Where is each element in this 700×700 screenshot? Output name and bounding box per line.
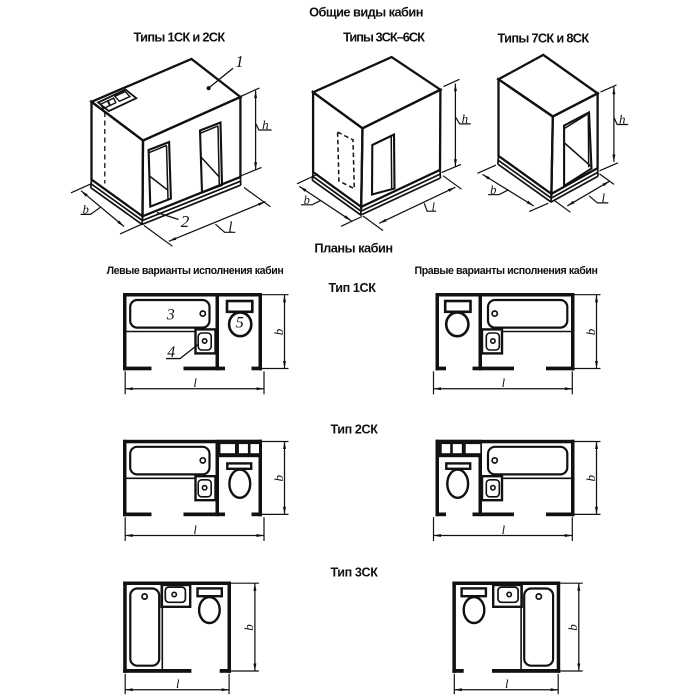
svg-text:4: 4 [167, 344, 175, 361]
svg-text:h: h [462, 111, 469, 126]
svg-text:Общие виды кабин: Общие виды кабин [309, 5, 423, 20]
svg-text:Планы кабин: Планы кабин [314, 241, 392, 256]
svg-text:b: b [271, 475, 286, 482]
svg-text:5: 5 [236, 315, 244, 332]
svg-text:l: l [502, 523, 506, 537]
svg-text:Типы 1СК и 2СК: Типы 1СК и 2СК [134, 30, 226, 45]
svg-text:h: h [262, 117, 269, 132]
svg-text:l: l [505, 677, 509, 691]
svg-text:b: b [583, 328, 598, 335]
svg-text:b: b [304, 193, 310, 207]
svg-text:b: b [83, 202, 89, 216]
svg-text:Тип 3СК: Тип 3СК [330, 566, 378, 580]
svg-text:Тип 2СК: Тип 2СК [330, 423, 378, 437]
svg-text:b: b [490, 183, 496, 197]
svg-text:Левые варианты исполнения каби: Левые варианты исполнения кабин [107, 265, 284, 277]
svg-text:b: b [565, 624, 580, 631]
svg-text:Типы 3СК–6СК: Типы 3СК–6СК [343, 30, 425, 45]
svg-text:l: l [193, 523, 197, 537]
svg-text:h: h [619, 112, 626, 127]
svg-text:Типы 7СК и 8СК: Типы 7СК и 8СК [498, 31, 590, 46]
svg-text:b: b [271, 328, 286, 335]
svg-text:1: 1 [235, 52, 244, 71]
svg-text:3: 3 [166, 307, 175, 324]
svg-text:l: l [228, 219, 232, 235]
svg-text:l: l [193, 376, 197, 390]
svg-text:b: b [583, 475, 598, 482]
svg-text:l: l [601, 190, 605, 205]
svg-text:2: 2 [181, 212, 190, 231]
svg-text:b: b [241, 624, 256, 631]
svg-text:l: l [502, 376, 506, 390]
svg-text:l: l [176, 677, 180, 691]
svg-text:Тип 1СК: Тип 1СК [328, 281, 376, 295]
svg-text:Правые варианты исполнения каб: Правые варианты исполнения кабин [414, 265, 597, 277]
